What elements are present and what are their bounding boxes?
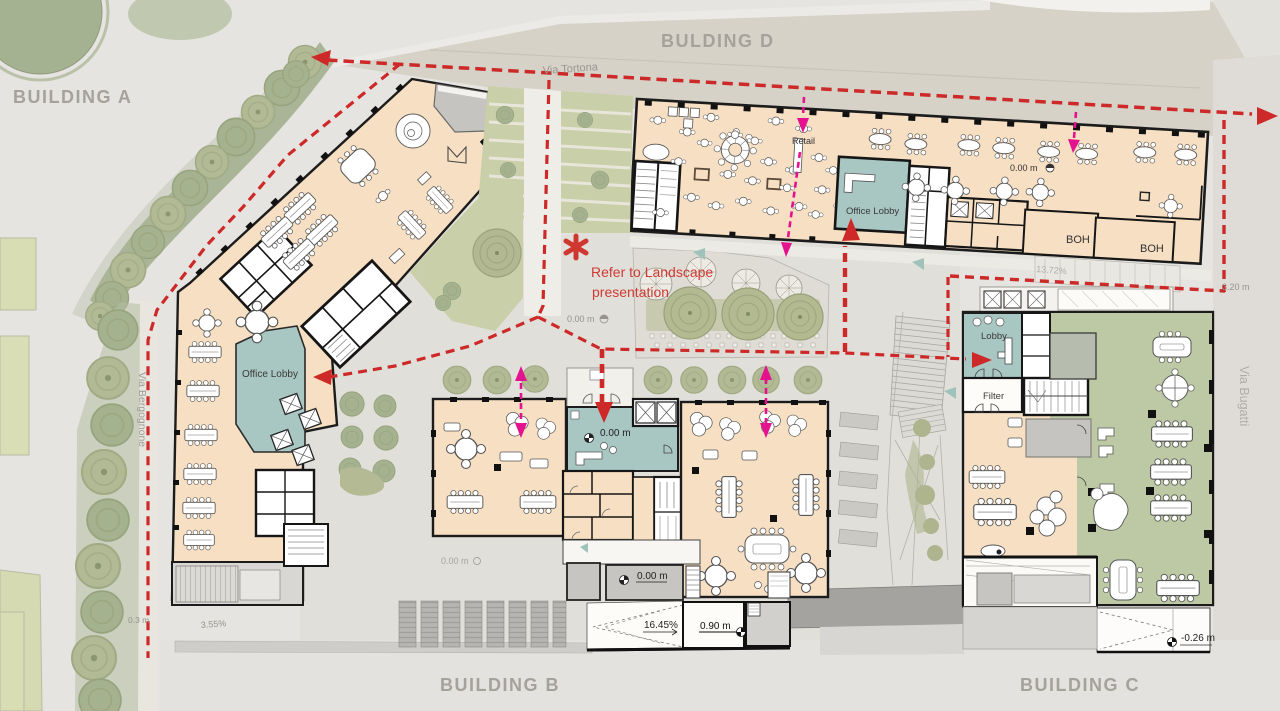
svg-text:3.20 m: 3.20 m bbox=[1222, 282, 1250, 292]
svg-text:Filter: Filter bbox=[983, 391, 1004, 402]
svg-text:BOH: BOH bbox=[1066, 234, 1090, 246]
svg-text:Refer to Landscape: Refer to Landscape bbox=[591, 264, 713, 280]
svg-text:Via Bergognone: Via Bergognone bbox=[136, 372, 148, 447]
svg-text:BUILDING B: BUILDING B bbox=[440, 675, 560, 695]
svg-text:3.55%: 3.55% bbox=[200, 618, 226, 630]
svg-text:Office Lobby: Office Lobby bbox=[242, 369, 298, 380]
svg-text:0.00 m: 0.00 m bbox=[1010, 163, 1038, 173]
svg-text:Retail: Retail bbox=[792, 136, 815, 146]
svg-text:BUILDING C: BUILDING C bbox=[1020, 675, 1140, 695]
svg-text:Office Lobby: Office Lobby bbox=[846, 206, 899, 217]
svg-text:13.72%: 13.72% bbox=[1036, 264, 1067, 276]
svg-text:0.00 m: 0.00 m bbox=[600, 428, 631, 439]
svg-text:Lobby: Lobby bbox=[981, 331, 1007, 342]
svg-text:BULDING D: BULDING D bbox=[661, 31, 775, 51]
svg-text:0.90 m: 0.90 m bbox=[700, 621, 731, 632]
svg-text:0.00 m: 0.00 m bbox=[441, 556, 469, 566]
svg-text:0.00 m: 0.00 m bbox=[567, 314, 595, 324]
svg-text:BUILDING A: BUILDING A bbox=[13, 87, 132, 107]
svg-text:-0.26 m: -0.26 m bbox=[1181, 633, 1215, 644]
svg-text:BOH: BOH bbox=[1140, 243, 1164, 255]
svg-text:0.3 m: 0.3 m bbox=[128, 615, 149, 625]
svg-text:0.00 m: 0.00 m bbox=[637, 571, 668, 582]
svg-text:presentation: presentation bbox=[592, 284, 669, 300]
svg-text:Via Bugatti: Via Bugatti bbox=[1237, 366, 1251, 426]
